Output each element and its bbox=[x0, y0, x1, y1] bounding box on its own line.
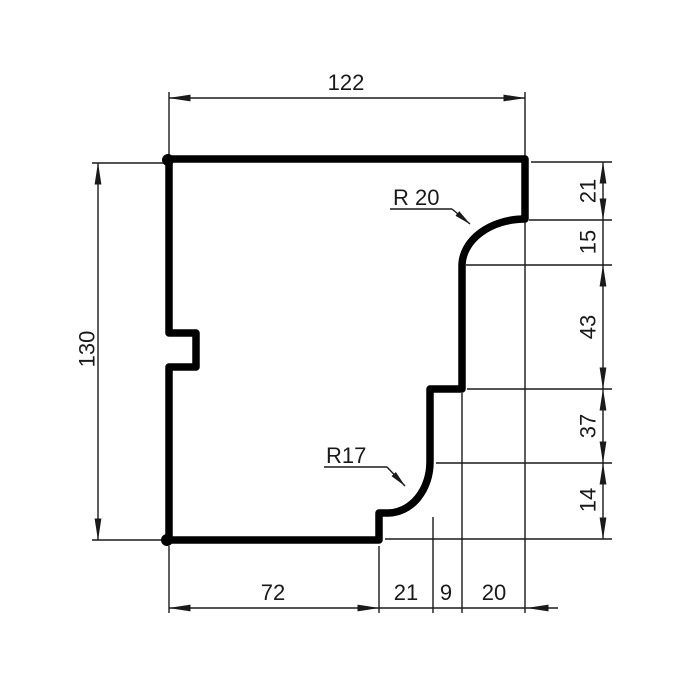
technical-drawing: 122 130 21 15 43 37 14 72 21 9 20 R 20 R… bbox=[0, 0, 686, 686]
profile-outline bbox=[169, 159, 525, 540]
dim-label-right-15: 15 bbox=[576, 230, 601, 254]
radius-label-r17: R17 bbox=[326, 443, 366, 468]
dim-label-left-height: 130 bbox=[75, 331, 100, 368]
dim-label-bottom-9: 9 bbox=[440, 580, 452, 605]
radius-label-r20: R 20 bbox=[393, 185, 439, 210]
dim-label-top-width: 122 bbox=[328, 70, 365, 95]
dim-label-right-37: 37 bbox=[576, 414, 601, 438]
dim-label-right-14: 14 bbox=[576, 488, 601, 512]
dim-label-right-21: 21 bbox=[576, 179, 601, 203]
drawing-sheet: 122 130 21 15 43 37 14 72 21 9 20 R 20 R… bbox=[0, 0, 686, 686]
endpoint-dot bbox=[162, 154, 174, 166]
dim-label-bottom-20: 20 bbox=[482, 580, 506, 605]
leader-r17-arrow bbox=[387, 467, 405, 486]
leader-r20-arrow bbox=[452, 209, 470, 224]
dim-label-bottom-21: 21 bbox=[394, 580, 418, 605]
dimension-labels: 122 130 21 15 43 37 14 72 21 9 20 R 20 R… bbox=[75, 70, 601, 605]
dim-label-bottom-72: 72 bbox=[261, 580, 285, 605]
dim-label-right-43: 43 bbox=[576, 315, 601, 339]
endpoint-dot bbox=[161, 534, 173, 546]
